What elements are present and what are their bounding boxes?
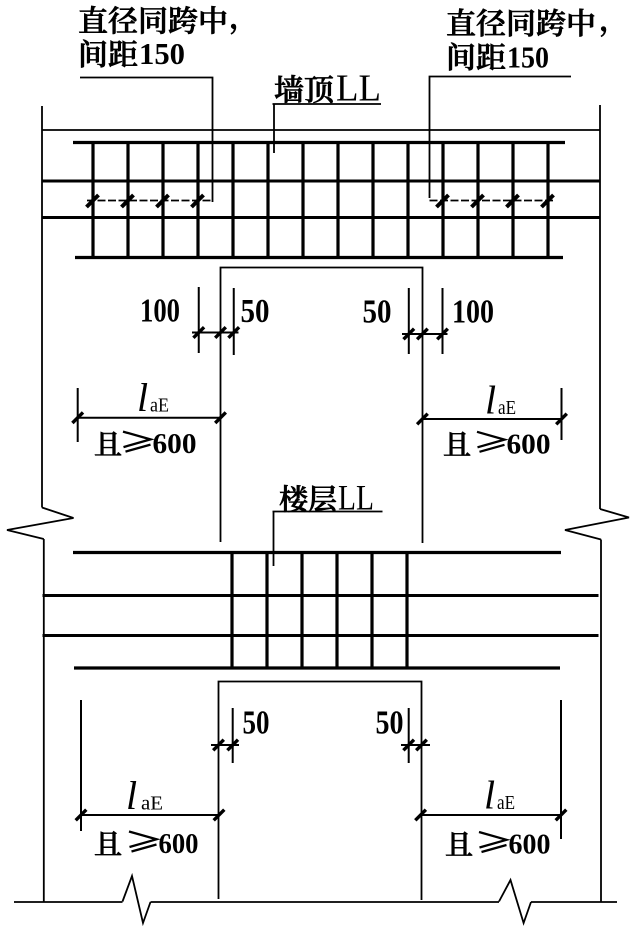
svg-text:l: l [126, 773, 137, 818]
svg-text:150: 150 [507, 40, 549, 75]
svg-text:aE: aE [141, 793, 163, 815]
svg-text:50: 50 [243, 705, 270, 742]
svg-text:600: 600 [509, 829, 551, 861]
svg-text:aE: aE [497, 792, 515, 814]
svg-text:aE: aE [498, 397, 516, 419]
svg-text:600: 600 [507, 429, 551, 461]
svg-text:150: 150 [139, 36, 185, 71]
svg-text:50: 50 [376, 705, 404, 742]
svg-text:l: l [137, 375, 148, 420]
svg-text:l: l [485, 378, 496, 423]
svg-text:l: l [484, 773, 495, 818]
svg-text:50: 50 [363, 294, 392, 331]
svg-text:aE: aE [150, 395, 169, 417]
svg-text:100: 100 [140, 293, 180, 330]
svg-text:600: 600 [159, 828, 199, 860]
svg-text:50: 50 [241, 293, 270, 330]
svg-text:100: 100 [452, 294, 494, 331]
svg-text:600: 600 [153, 428, 197, 460]
